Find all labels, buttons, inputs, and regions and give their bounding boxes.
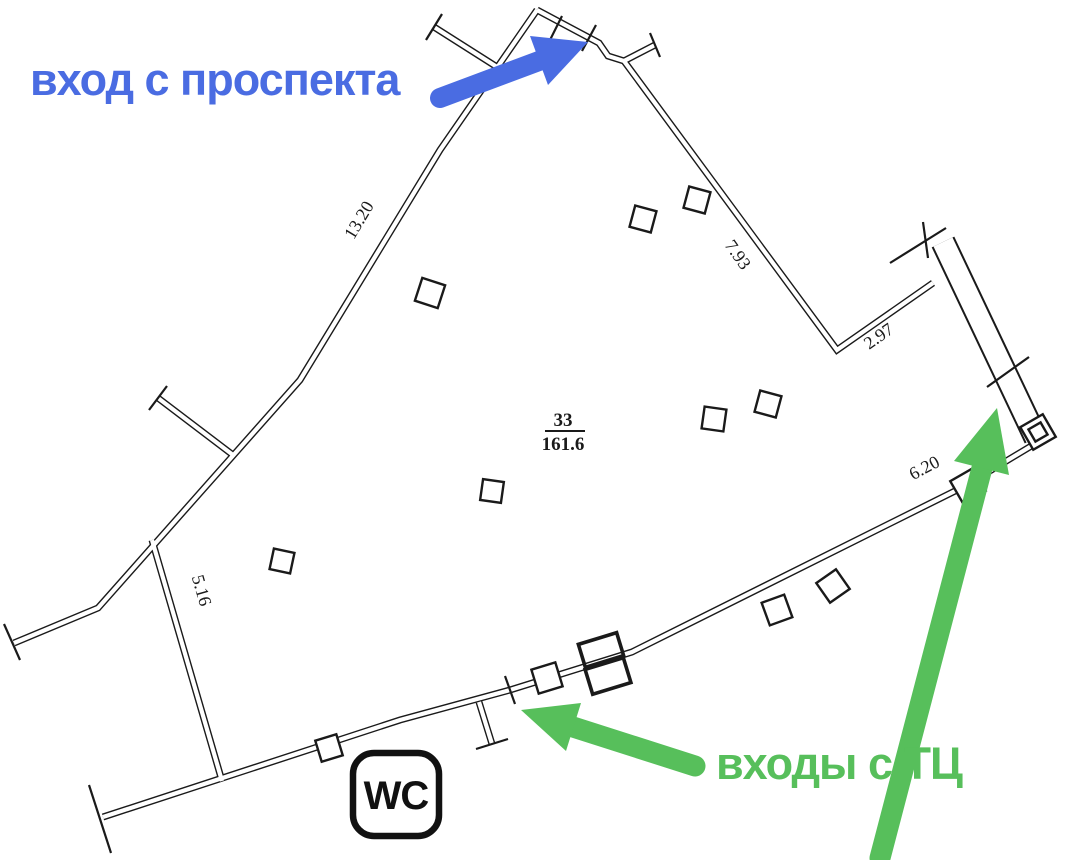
room-number: 33 [554,410,573,431]
floor-plan-scan: 13.20 7.93 2.97 6.20 5.16 33 161.6 WC [0,0,1065,860]
walls-outer-stroke [14,10,1048,817]
dimension-label-5-16: 5.16 [188,572,216,608]
wc-label: WC [364,774,429,818]
wall-top-right-7-93 [537,10,933,350]
dimension-ticks [4,14,1029,853]
dimension-label-6-20: 6.20 [906,451,943,483]
wc-badge: WC [353,753,439,836]
dimension-label-13-20: 13.20 [340,197,378,242]
mall-entrance-arrow-long [880,408,1009,858]
avenue-entrance-label: вход с проспекта [30,57,399,102]
room-area: 161.6 [542,434,585,455]
dimension-label-2-97: 2.97 [860,319,897,353]
room-label: 33 161.6 [542,410,585,455]
dimension-label-7-93: 7.93 [721,236,755,273]
columns [270,187,782,574]
floor-plan-drawing: 13.20 7.93 2.97 6.20 5.16 33 161.6 WC [0,0,1065,860]
mall-entrance-arrow-short [521,703,695,766]
walls-inner-white [14,10,1048,817]
mall-entrances-label: входы с ТЦ [716,741,962,786]
